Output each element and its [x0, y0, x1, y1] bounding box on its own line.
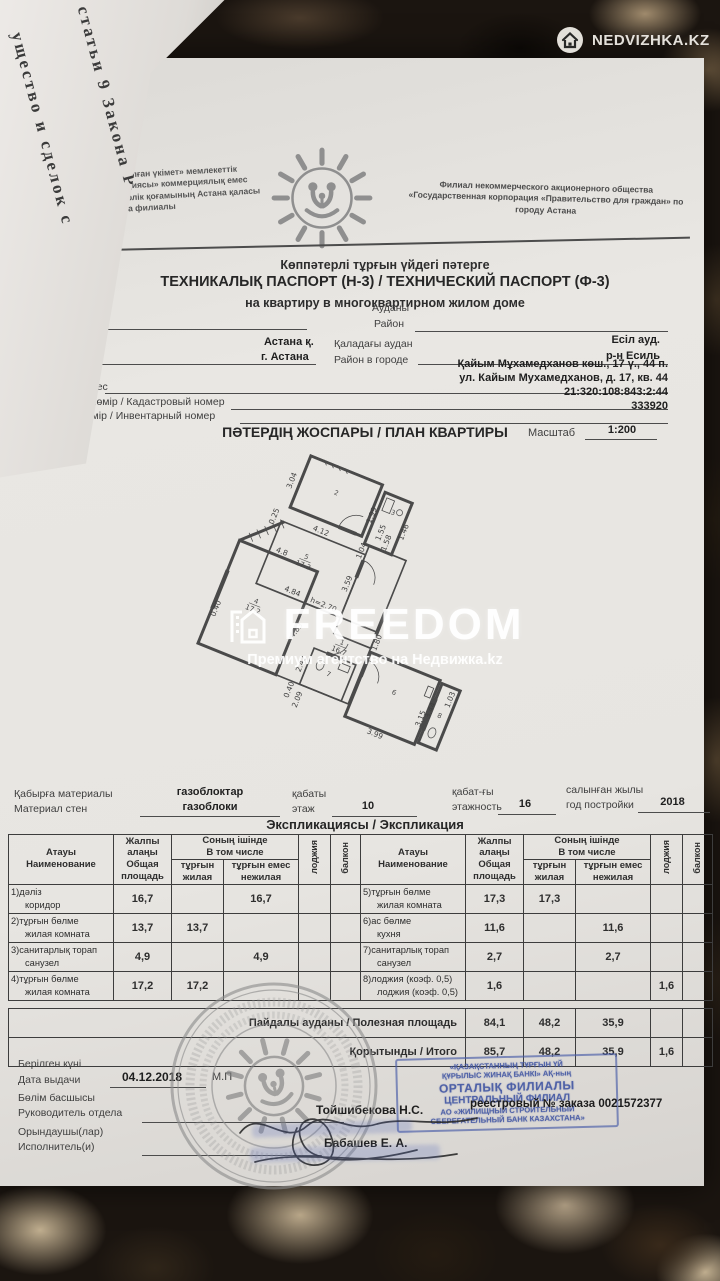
- city-value-ru: г. Астана: [261, 351, 309, 363]
- col-balcony: балкон: [331, 835, 361, 885]
- plan-scale-label: Масштаб: [528, 427, 575, 439]
- area-value: [651, 884, 683, 913]
- room-name: 1)дәлізкоридор: [9, 884, 114, 913]
- walls-label-ru: Материал стен: [14, 803, 87, 815]
- area-value: [683, 1038, 713, 1067]
- area-value: [299, 884, 331, 913]
- room-name: 7)санитарлық торапсанузел: [361, 942, 466, 971]
- area-value: [683, 1009, 713, 1038]
- area-value: [651, 1009, 683, 1038]
- plan-dimension: 3.59: [340, 574, 355, 593]
- area-value: 17,3: [524, 884, 576, 913]
- table-row: 7)санитарлық торапсанузел2,72,7: [361, 942, 713, 971]
- col-loggia: лоджия: [651, 835, 683, 885]
- area-value: 1,6: [466, 971, 524, 1000]
- area-value: 16,7: [224, 884, 299, 913]
- sun-family-logo-icon: [266, 142, 378, 254]
- explication-title: Экспликациясы / Экспликация: [200, 817, 530, 832]
- plan-room-number: 6: [390, 688, 397, 697]
- year-label-kk: салынған жылы: [566, 784, 643, 796]
- area-value: [524, 942, 576, 971]
- address-value-ru: ул. Кайым Мухамедханов, д. 17, кв. 44: [380, 372, 668, 384]
- room-name: 8)лоджия (коэф. 0,5)лоджия (коэф. 0,5): [361, 971, 466, 1000]
- room-name: 5)тұрғын бөлмежилая комната: [361, 884, 466, 913]
- district-label-ru: Район: [374, 318, 404, 330]
- floors-label-kk: қабат-ғы: [452, 786, 494, 798]
- org-name-right: Филиал некоммерческого акционерного обще…: [400, 178, 693, 220]
- plan-scale-value: 1:200: [592, 424, 652, 436]
- explication-table-right: АтауыНаименование Жалпы алаңыОбщая площа…: [360, 834, 713, 1001]
- area-value: [576, 884, 651, 913]
- area-value: 11,6: [576, 913, 651, 942]
- area-value: [683, 971, 713, 1000]
- col-total: Жалпы алаңыОбщая площадь: [466, 835, 524, 885]
- region-line: [103, 329, 307, 330]
- plan-dimension: 4.84: [283, 584, 302, 599]
- floors-value: 16: [500, 798, 550, 810]
- area-value: 4,9: [224, 942, 299, 971]
- col-name: АтауыНаименование: [9, 835, 114, 885]
- city-district-value-kk: Есіл ауд.: [560, 334, 660, 346]
- room-name: 3)санитарлық торапсанузел: [9, 942, 114, 971]
- col-name: АтауыНаименование: [361, 835, 466, 885]
- folded-page-text: статьи 9 Закона Р: [73, 4, 141, 191]
- folded-page-text: ущество и сделок с: [7, 30, 78, 228]
- area-value: 2,7: [466, 942, 524, 971]
- col-living: тұрғынжилая: [172, 859, 224, 884]
- area-value: [331, 913, 361, 942]
- district-line: [415, 331, 668, 332]
- year-value: 2018: [645, 796, 700, 808]
- col-nonliving: тұрғын емеснежилая: [576, 859, 651, 884]
- area-value: [683, 913, 713, 942]
- plan-dimension: 4.12: [312, 524, 331, 539]
- area-value: [524, 971, 576, 1000]
- area-value: [651, 942, 683, 971]
- plan-room-number: 8: [436, 711, 443, 720]
- col-balcony: балкон: [683, 835, 713, 885]
- executor-label-ru: Исполнитель(и): [18, 1141, 95, 1153]
- area-value: [683, 884, 713, 913]
- inventory-value: 333920: [380, 400, 668, 412]
- freedom-watermark: FREEDOM Премиум агентство на Недвижка.kz: [200, 600, 550, 668]
- table-row: 2)тұрғын бөлмежилая комната13,713,7: [9, 913, 361, 942]
- col-including: Соның ішіндеВ том числе: [524, 835, 651, 860]
- area-value: [172, 884, 224, 913]
- area-value: [524, 913, 576, 942]
- city-line: [100, 364, 316, 365]
- issue-date-label-kk: Берілген күні: [18, 1058, 81, 1070]
- area-value: 16,7: [114, 884, 172, 913]
- table-row: 6)ас бөлмекухня11,611,6: [361, 913, 713, 942]
- freedom-building-icon: [226, 602, 272, 648]
- district-label-kk: Ауданы: [372, 302, 409, 314]
- area-value: [651, 913, 683, 942]
- area-value: 4,9: [114, 942, 172, 971]
- plan-room-number: 7: [325, 670, 332, 679]
- address-value-kk: Қайым Мұхамедханов көш., 17 ү., 44 п.: [380, 358, 668, 370]
- walls-value-ru: газоблоки: [150, 801, 270, 813]
- dept-head-label-ru: Руководитель отдела: [18, 1107, 122, 1119]
- area-value: 17,3: [466, 884, 524, 913]
- area-value: [576, 971, 651, 1000]
- table-row: 5)тұрғын бөлмежилая комната17,317,3: [361, 884, 713, 913]
- col-including: Соның ішіндеВ том числе: [172, 835, 299, 860]
- executor-label-kk: Орындаушы(лар): [18, 1126, 103, 1138]
- city-district-label-kk: Қаладағы аудан: [334, 338, 413, 350]
- table-row: 8)лоджия (коэф. 0,5)лоджия (коэф. 0,5)1,…: [361, 971, 713, 1000]
- city-value-kk: Астана қ.: [264, 336, 314, 348]
- area-value: [299, 913, 331, 942]
- room-name: 4)тұрғын бөлмежилая комната: [9, 971, 114, 1000]
- area-value: 11,6: [466, 913, 524, 942]
- area-value: [331, 884, 361, 913]
- area-value: 35,9: [576, 1009, 651, 1038]
- area-value: 13,7: [114, 913, 172, 942]
- area-value: 1,6: [651, 1038, 683, 1067]
- room-name: 2)тұрғын бөлмежилая комната: [9, 913, 114, 942]
- area-value: [224, 913, 299, 942]
- floor-label-ru: этаж: [292, 803, 315, 815]
- col-nonliving: тұрғын емеснежилая: [224, 859, 299, 884]
- area-value: 84,1: [466, 1009, 524, 1038]
- plan-scale-line: [585, 439, 657, 440]
- walls-value-kk: газоблоктар: [150, 786, 270, 798]
- cadastre-value: 21:320:108:843:2:44: [380, 386, 668, 398]
- plan-room-area: 17.3: [294, 558, 312, 572]
- floors-line: [498, 814, 556, 815]
- walls-label-kk: Қабырға материалы: [14, 788, 113, 800]
- header-rule: [86, 237, 690, 251]
- plan-room-number: 2: [333, 489, 340, 498]
- area-value: 17,2: [114, 971, 172, 1000]
- year-line: [638, 812, 710, 813]
- plan-dimension: 1.46: [396, 522, 411, 541]
- floors-label-ru: этажность: [452, 801, 502, 813]
- plan-title: ПӘТЕРДІҢ ЖОСПАРЫ / ПЛАН КВАРТИРЫ: [170, 424, 560, 440]
- room-name: 6)ас бөлмекухня: [361, 913, 466, 942]
- year-label-ru: год постройки: [566, 799, 634, 811]
- doc-subtitle-kk: Көппәтерлі тұрғын үйдегі пәтерге: [95, 258, 675, 272]
- freedom-tagline: Премиум агентство на Недвижка.kz: [200, 652, 550, 668]
- area-value: 13,7: [172, 913, 224, 942]
- doc-title: ТЕХНИКАЛЫҚ ПАСПОРТ (Н-3) / ТЕХНИЧЕСКИЙ П…: [95, 274, 675, 290]
- area-value: 2,7: [576, 942, 651, 971]
- plan-room-number: 3: [390, 508, 397, 517]
- dept-head-label-kk: Бөлім басшысы: [18, 1092, 95, 1104]
- photo-scene: NEDVIZHKA.KZ арға арналған үкімет» мемле…: [0, 0, 720, 1281]
- table-row: 1)дәлізкоридор16,716,7: [9, 884, 361, 913]
- col-living: тұрғынжилая: [524, 859, 576, 884]
- col-total: Жалпы алаңыОбщая площадь: [114, 835, 172, 885]
- area-value: 1,6: [651, 971, 683, 1000]
- floor-value: 10: [338, 800, 398, 812]
- area-value: [683, 942, 713, 971]
- area-value: 48,2: [524, 1009, 576, 1038]
- freedom-word: FREEDOM: [284, 600, 525, 650]
- plan-dimension: 3.99: [365, 727, 384, 742]
- floor-label-kk: қабаты: [292, 788, 326, 800]
- col-loggia: лоджия: [299, 835, 331, 885]
- issue-date-label-ru: Дата выдачи: [18, 1074, 80, 1086]
- area-value: [172, 942, 224, 971]
